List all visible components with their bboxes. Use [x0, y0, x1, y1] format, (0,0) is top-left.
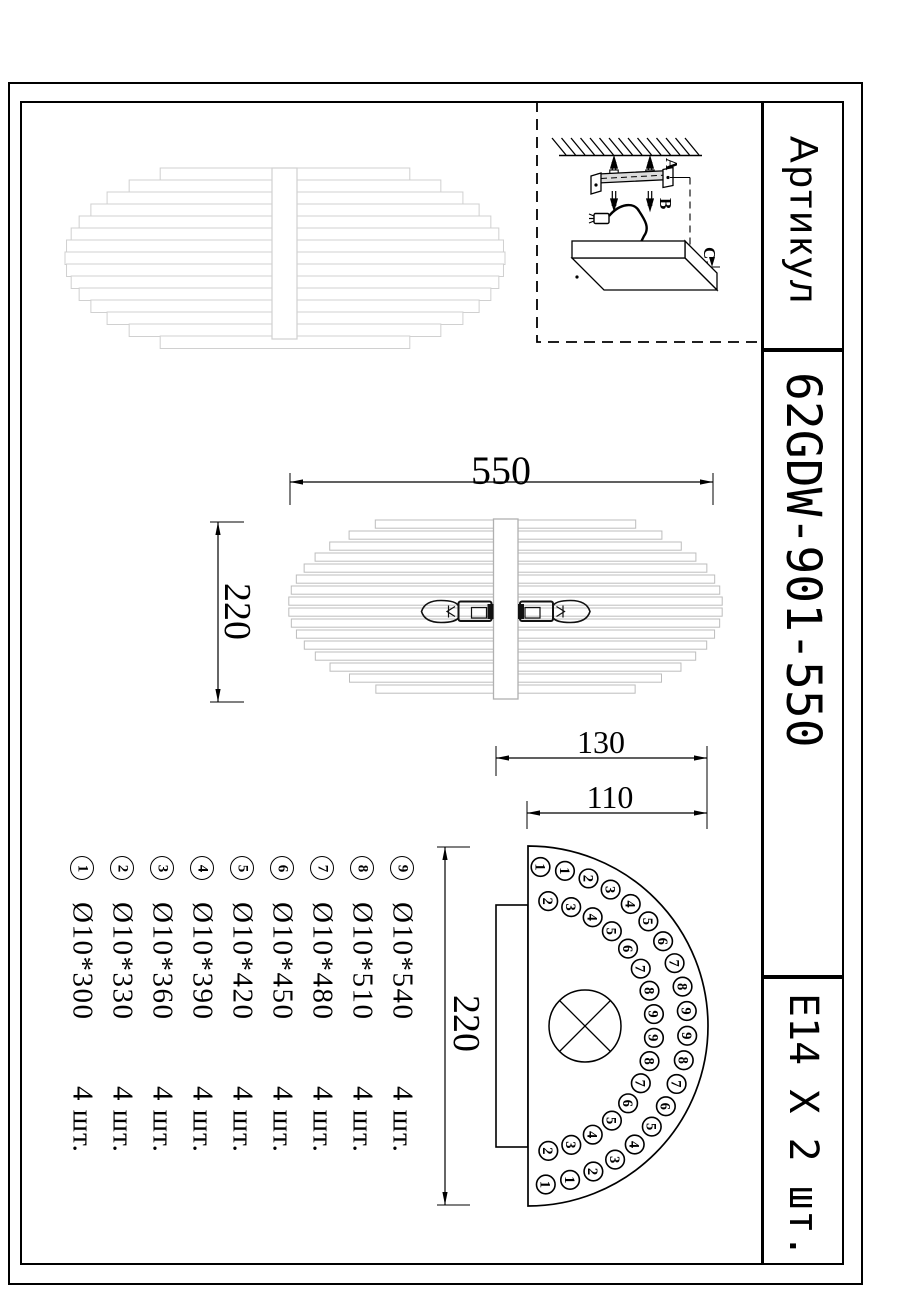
- rod-number: 5: [639, 918, 655, 925]
- part-qty: 4 шт.: [184, 1086, 220, 1158]
- rod-number: 3: [562, 903, 578, 910]
- part-number-circle: 2: [110, 856, 134, 880]
- install-label-b: B: [655, 194, 675, 214]
- rod-number: 8: [640, 987, 656, 994]
- rod-number: 8: [673, 983, 689, 990]
- rod-number: 9: [645, 1034, 661, 1041]
- part-number-circle: 4: [190, 856, 214, 880]
- part-number-circle: 6: [270, 856, 294, 880]
- wire-connector: [589, 205, 647, 242]
- install-label-a: A: [661, 155, 681, 175]
- rod-number: 2: [539, 898, 555, 905]
- lamp-front-view: [65, 168, 505, 349]
- part-qty: 4 шт.: [104, 1086, 140, 1158]
- rod-number: 7: [632, 1080, 648, 1087]
- part-spec: Ø10*450: [264, 902, 300, 1025]
- mounting-screws: [610, 157, 654, 210]
- rod-number: 8: [675, 1057, 691, 1064]
- rod-number: 3: [562, 1141, 578, 1148]
- part-qty: 4 шт.: [264, 1086, 300, 1158]
- rod-number: 1: [537, 1181, 553, 1188]
- part-spec: Ø10*510: [344, 902, 380, 1025]
- rod-number: 7: [667, 1080, 683, 1087]
- part-qty: 4 шт.: [64, 1086, 100, 1158]
- rod-number: 6: [619, 945, 635, 952]
- part-spec: Ø10*300: [64, 902, 100, 1025]
- lamp-center-column-side: [494, 519, 519, 699]
- part-number-circle: 1: [70, 856, 94, 880]
- rod-number: 6: [619, 1100, 635, 1107]
- rod-number: 8: [640, 1058, 656, 1065]
- dim-label-110: 110: [570, 779, 650, 816]
- part-number-circle: 9: [390, 856, 414, 880]
- rod-number: 2: [539, 1147, 555, 1154]
- rod-number: 5: [643, 1123, 659, 1130]
- part-number-circle: 8: [350, 856, 374, 880]
- artikul-label: Артикул: [762, 136, 844, 311]
- dim-label-220-side: 220: [215, 583, 259, 650]
- rod-number: 3: [601, 886, 617, 893]
- installation-diagram: [537, 101, 763, 342]
- dim-label-130: 130: [561, 724, 641, 761]
- part-spec: Ø10*480: [304, 902, 340, 1025]
- rod-number: 7: [665, 960, 681, 967]
- rod-number: 9: [645, 1010, 661, 1017]
- rod-number: 4: [622, 900, 638, 907]
- wire-cable: [609, 205, 647, 242]
- rod-number: 1: [561, 1176, 577, 1183]
- rod-number: 5: [603, 928, 619, 935]
- part-qty: 4 шт.: [304, 1086, 340, 1158]
- rod-number: 4: [626, 1141, 642, 1148]
- rod-number: 9: [678, 1032, 694, 1039]
- ceiling-hatch: [552, 138, 699, 155]
- rod-number: 6: [654, 938, 670, 945]
- part-spec: Ø10*390: [184, 902, 220, 1025]
- dashed-detail-box: [537, 101, 763, 342]
- part-spec: Ø10*360: [144, 902, 180, 1025]
- install-label-c: C: [699, 244, 719, 264]
- center-column-section: [496, 905, 528, 1147]
- rod-number: 4: [584, 1131, 600, 1138]
- rod-number: 9: [678, 1007, 694, 1014]
- rod-number: 4: [583, 914, 599, 921]
- part-spec: Ø10*330: [104, 902, 140, 1025]
- part-qty: 4 шт.: [344, 1086, 380, 1158]
- rod-number: 7: [632, 965, 648, 972]
- part-number-circle: 3: [150, 856, 174, 880]
- article-number: 62GDW-901-550: [762, 372, 844, 753]
- part-spec: Ø10*540: [384, 902, 420, 1025]
- rod-number: 2: [579, 875, 595, 882]
- part-number-circle: 7: [310, 856, 334, 880]
- rod-number: 6: [657, 1103, 673, 1110]
- rod-number: 5: [603, 1117, 619, 1124]
- part-qty: 4 шт.: [384, 1086, 420, 1158]
- rod-number: 2: [584, 1168, 600, 1175]
- drawing-page: 112345678998765432112345678998765432 Арт…: [0, 0, 919, 1300]
- part-number-circle: 5: [230, 856, 254, 880]
- part-qty: 4 шт.: [224, 1086, 260, 1158]
- ceiling-canopy-box: [572, 241, 717, 290]
- rod-number: 1: [531, 863, 547, 870]
- part-spec: Ø10*420: [224, 902, 260, 1025]
- part-qty: 4 шт.: [144, 1086, 180, 1158]
- socket-spec: E14 X 2 шт.: [762, 993, 844, 1263]
- dim-label-220-section: 220: [444, 995, 488, 1062]
- rod-number: 1: [556, 867, 572, 874]
- rod-number: 3: [606, 1156, 622, 1163]
- dim-label-550: 550: [441, 447, 561, 494]
- half-section-view: [496, 846, 708, 1206]
